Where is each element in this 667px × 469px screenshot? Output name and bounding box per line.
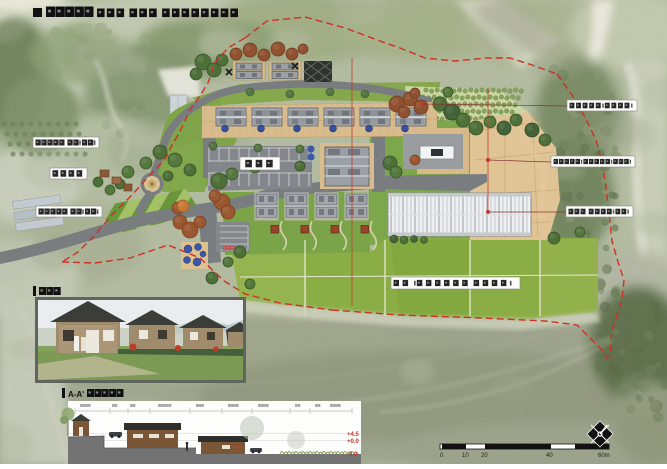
svg-text:20: 20 (481, 453, 488, 459)
svg-text:+0.0: +0.0 (347, 439, 360, 445)
svg-text:+4.5: +4.5 (347, 432, 360, 438)
svg-text:-0.0: -0.0 (347, 452, 358, 458)
svg-text:40: 40 (546, 453, 553, 459)
svg-text:10: 10 (462, 453, 469, 459)
svg-text:A-A': A-A' (68, 390, 84, 399)
svg-text:60m: 60m (598, 453, 610, 459)
